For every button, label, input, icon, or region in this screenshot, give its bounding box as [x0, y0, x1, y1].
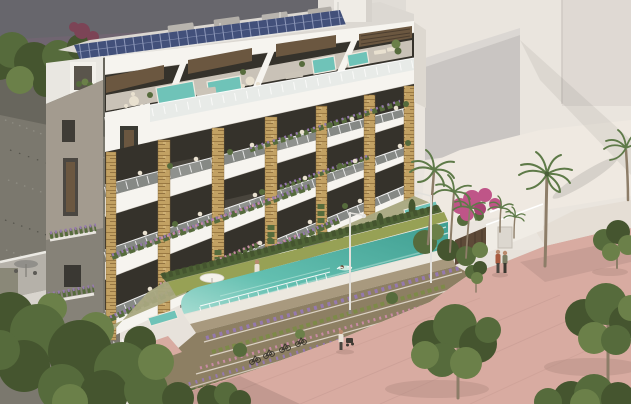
right-side-return — [414, 22, 426, 108]
side-recess-door — [63, 158, 78, 216]
side-window-lower — [64, 265, 81, 287]
side-window — [62, 120, 75, 142]
stroller — [346, 338, 353, 343]
architectural-render — [0, 0, 631, 404]
